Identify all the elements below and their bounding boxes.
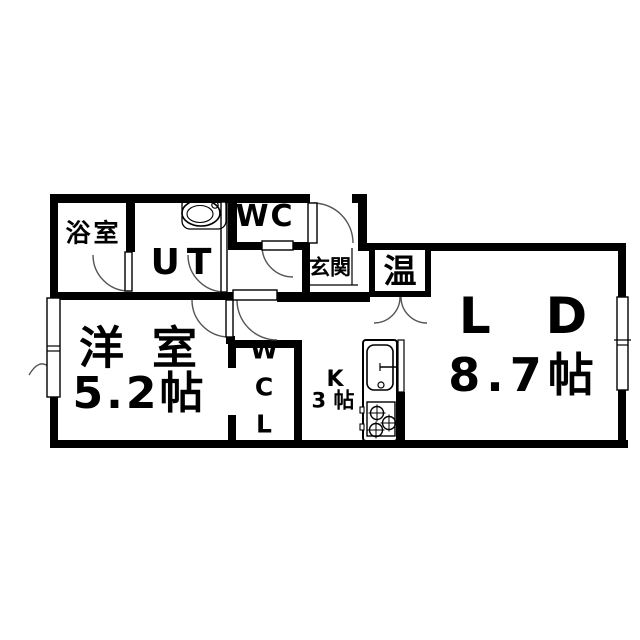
wall-right-lower [618, 390, 626, 448]
floorplan-canvas: 浴室 UT WC 玄関 温 LD 8.7帖 洋室 5.2帖 WCL K 3 帖 [0, 0, 640, 640]
vanity-basin-inner [187, 206, 213, 223]
wall-mid-horizontal [50, 292, 233, 300]
room-label-western-room: 洋室 [51, 326, 225, 371]
wall-wcl-left-lower [228, 415, 236, 442]
bathroom-door-leaf [125, 252, 132, 291]
wall-wc-bottom [228, 242, 262, 250]
room-label-living-dining: LD [404, 291, 640, 341]
hall-door-leaf [233, 290, 277, 300]
bathroom-door-arc [93, 255, 129, 291]
stove-knob-1 [360, 407, 364, 413]
wall-genkan-right [358, 194, 367, 251]
wall-genkan-bottom [277, 292, 370, 302]
room-area-kitchen: 3 帖 [312, 391, 355, 412]
kitchen-counter [360, 340, 404, 441]
stove-knob-2 [360, 424, 364, 430]
entrance-door-leaf [308, 203, 317, 243]
room-area-western-room: 5.2帖 [70, 372, 207, 416]
counter-screen [398, 340, 404, 392]
entrance-door-arc [313, 203, 353, 243]
wall-bath-right [126, 194, 135, 252]
room-label-entrance: 玄関 [309, 258, 351, 279]
room-label-walk-in-closet: WCL [252, 336, 277, 447]
wall-wcl-right [294, 340, 302, 442]
wall-kitchen-partition [397, 392, 405, 442]
room-area-living-dining: 8.7帖 [442, 352, 600, 398]
western-room-door-leaf [226, 300, 233, 337]
casement-window-arc [29, 364, 49, 375]
wall-wcl-left-upper [228, 340, 236, 368]
room-label-bathroom: 浴室 [62, 221, 121, 246]
wall-bottom [50, 440, 628, 448]
hall-door-arc [237, 300, 277, 340]
wc-door-leaf [262, 241, 293, 250]
room-label-water-heater: 温 [384, 255, 417, 288]
room-label-utility: UT [144, 245, 219, 281]
heater-door-arc-left [374, 297, 400, 323]
room-label-toilet: WC [233, 202, 294, 232]
